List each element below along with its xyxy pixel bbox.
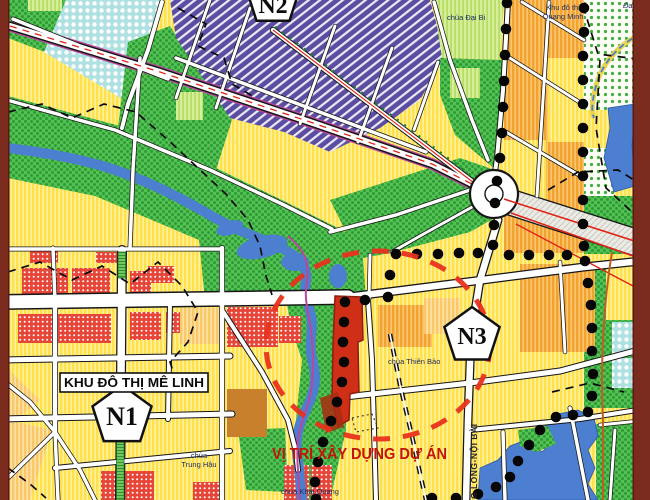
boundary-dot <box>578 171 589 182</box>
boundary-dot <box>568 410 579 421</box>
label-chua-khai-quang: chùa Khai Quang <box>281 487 339 496</box>
boundary-dot <box>495 153 506 164</box>
label-quang-minh: Quang Minh <box>543 12 584 21</box>
boundary-dot <box>501 24 512 35</box>
frame-left <box>0 0 8 500</box>
boundary-dot <box>433 249 444 260</box>
boundary-dot <box>490 198 501 209</box>
boundary-dot <box>391 249 402 260</box>
boundary-dot <box>524 440 535 451</box>
boundary-dot <box>579 241 590 252</box>
boundary-dot <box>339 357 350 368</box>
road-segment <box>0 297 348 302</box>
road-segment <box>53 248 55 302</box>
boundary-dot <box>498 102 509 113</box>
boundary-dot <box>583 407 594 418</box>
boundary-dot <box>578 147 589 158</box>
boundary-dot <box>580 256 591 267</box>
boundary-dot <box>504 250 515 261</box>
label-chua-dai-bi: chùa Đại Bi <box>447 13 486 22</box>
boundary-dot <box>544 250 555 261</box>
area-label-text: KHU ĐÔ THỊ MÊ LINH <box>64 375 204 390</box>
road-segment <box>168 302 170 419</box>
zone-marker-n2[interactable]: N2 <box>246 0 299 21</box>
boundary-dot <box>524 250 535 261</box>
planning-map-viewport[interactable]: N1N2N3 KHU ĐÔ THỊ MÊ LINH VỊ TRÍ XÂY DỰN… <box>0 0 650 500</box>
zone-marker-label: N3 <box>457 324 486 350</box>
boundary-dot <box>578 75 589 86</box>
boundary-dot <box>578 219 589 230</box>
boundary-dot <box>310 477 321 488</box>
boundary-dot <box>578 195 589 206</box>
boundary-dot <box>337 377 348 388</box>
boundary-dot <box>586 300 597 311</box>
boundary-dot <box>360 295 371 306</box>
site-title-text: VỊ TRÍ XÂY DỰNG DỰ ÁN <box>272 444 447 463</box>
boundary-dot <box>489 220 500 231</box>
boundary-dot <box>535 425 546 436</box>
boundary-dot <box>326 416 337 427</box>
boundary-dot <box>492 176 503 187</box>
boundary-dot <box>473 248 484 259</box>
zoning-map[interactable]: N1N2N3 KHU ĐÔ THỊ MÊ LINH VỊ TRÍ XÂY DỰN… <box>0 0 650 500</box>
label-chua-trung-hau-1: chùa <box>191 451 208 460</box>
boundary-dot <box>588 369 599 380</box>
boundary-dot <box>583 278 594 289</box>
boundary-dot <box>383 292 394 303</box>
boundary-dot <box>499 76 510 87</box>
frame-right <box>634 0 650 500</box>
label-road-noi-bai: ĐI THĂNG LONG-NỘI BÀI <box>468 424 479 500</box>
boundary-dot <box>587 391 598 402</box>
road-segment <box>503 432 505 500</box>
zone-orange <box>378 305 432 347</box>
zone-lightorange <box>180 308 224 344</box>
boundary-dot <box>578 123 589 134</box>
zone-lightgreen <box>28 0 62 11</box>
label-corner-note: Đa <box>623 1 633 10</box>
zone-marker-label: N2 <box>258 0 287 19</box>
boundary-dot <box>578 51 589 62</box>
zone-lightgreen <box>176 92 203 120</box>
boundary-dot <box>578 99 589 110</box>
zone-bluedot <box>612 358 635 388</box>
label-chua-thien-bao: chùa Thiên Bảo <box>388 357 440 366</box>
frame-left-shadow <box>8 0 10 500</box>
boundary-dot <box>587 323 598 334</box>
frame-right-shadow <box>633 0 635 500</box>
road-segment <box>369 255 370 300</box>
boundary-dot <box>587 346 598 357</box>
boundary-dot <box>340 297 351 308</box>
boundary-dot <box>505 472 516 483</box>
boundary-dot <box>579 27 590 38</box>
boundary-dot <box>551 412 562 423</box>
boundary-dot <box>454 248 465 259</box>
boundary-dot <box>332 397 343 408</box>
boundary-dot <box>500 50 511 61</box>
zone-yellow <box>606 262 635 320</box>
zone-marker-label: N1 <box>106 402 138 431</box>
boundary-dot <box>385 270 396 281</box>
boundary-dot <box>491 482 502 493</box>
label-khu-do-thi: Khu đô thị <box>546 3 580 12</box>
boundary-dot <box>562 250 573 261</box>
boundary-dot <box>497 128 508 139</box>
label-chua-trung-hau-2: Trung Hậu <box>181 460 216 469</box>
boundary-dot <box>488 240 499 251</box>
boundary-dot <box>513 456 524 467</box>
boundary-dot <box>339 317 350 328</box>
boundary-dot <box>338 337 349 348</box>
